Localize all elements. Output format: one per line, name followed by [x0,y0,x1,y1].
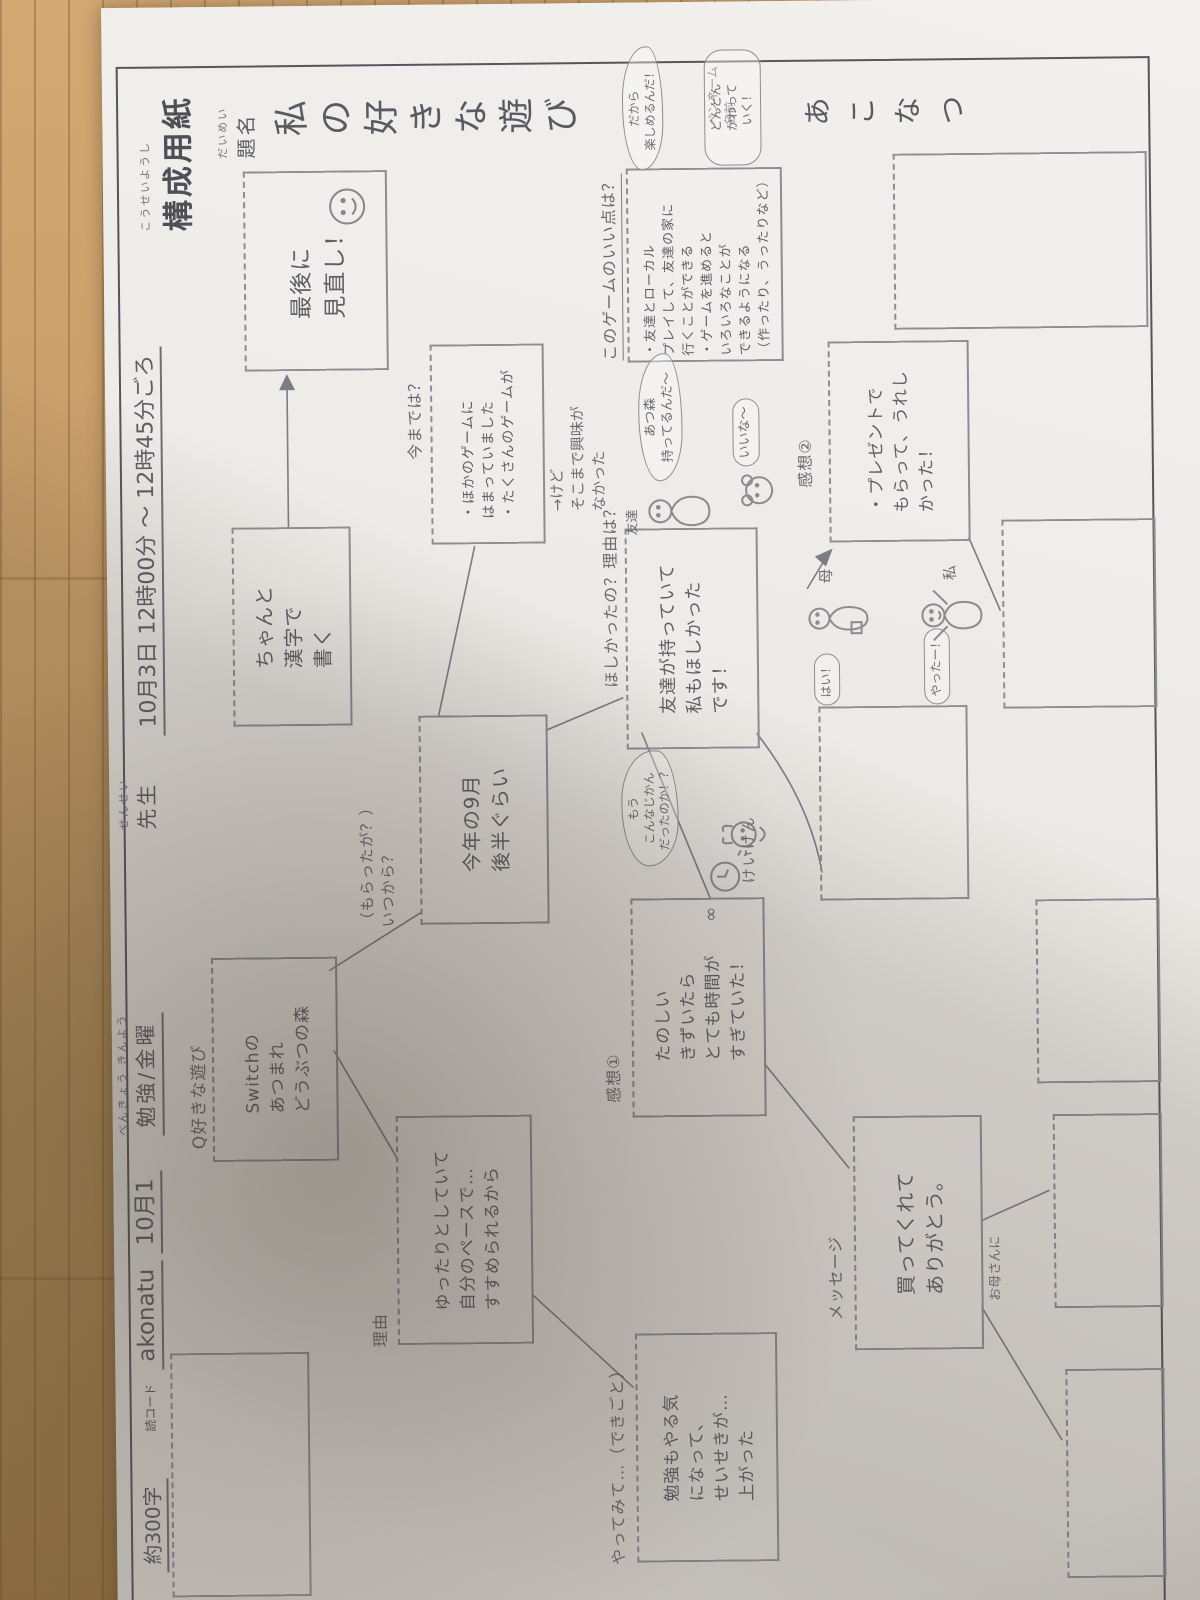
friend-label: 友達 [621,509,640,535]
box-final-check-text: 最後に 見直し！ [281,223,350,320]
message-label: メッセージ [822,1236,847,1321]
message-note: お母さんに [984,1236,1004,1301]
empty-box-2 [1001,518,1157,709]
box-wanted-text: 友達が持っていて 私もほしかった です！ [652,563,732,714]
box-message: 買ってくれて ありがとう。 [853,1115,984,1350]
friend-doodle-cluster: 友達 あつ森 持ってるんだ〜 いいな〜 [620,351,792,538]
box-reason: ゆったりとしていて 自分のペースで… すすめられるから [396,1115,534,1345]
friend-speech-bubble: あつ森 持ってるんだ〜 [638,353,683,481]
box-kanji: ちゃんと 漢字で 書く [231,527,352,727]
empty-box-5 [1053,1113,1164,1308]
box-until-now: ・ほかのゲームに はまっていました ・たくさんのゲームが [430,343,546,544]
infinity-squiggle: ∞ [700,907,721,922]
keiken-label: けいけん [738,815,760,883]
empty-box-3 [818,705,969,901]
line-kanji-to-final [287,386,288,528]
good-points-label: このゲームのいい点は？ [595,174,624,361]
box-good-points: ・友達とローカル プレイして、友達の家に 行くことができる ・ゲームを進めると … [626,167,784,363]
box-when-text: 今年の9月 後半ぐらい [455,767,514,873]
photo-scene: 約300字 読コード akonatu 10月1 べんきょう きんよう 勉強/金曜… [0,0,1200,1600]
q-label: Q好きな遊び [184,1045,210,1150]
line-message-to-boxN [982,1306,1062,1441]
box-kanji-text: ちゃんと 漢字で 書く [248,584,336,669]
box-final-check: 最後に 見直し！ [243,170,389,371]
until-note: →けど そこまで興味が なかった [545,406,609,512]
when-label: （もらったが？） いつから？ [355,799,398,927]
box-message-text: 買ってくれて ありがとう。 [889,1170,948,1295]
empty-box-6 [1065,1368,1166,1578]
box-good-points-text: ・友達とローカル プレイして、友達の家に 行くことができる ・ゲームを進めると … [637,173,772,356]
line-q-to-reason [334,1050,398,1161]
empty-box-4 [1035,898,1161,1083]
until-label: 今までは？ [401,375,426,460]
want-label: ほしかったの？理由は？ [596,501,622,688]
mom-label: 母 [815,568,836,583]
box-favorite-game: Switchの あつまれ どうぶつの森 [211,957,339,1162]
empty-box-7 [893,151,1149,330]
box-try: 勉強もやる気 になって、 せいせきが… 上がった [635,1332,779,1562]
mom-speech-bubble: はい！ [814,653,840,705]
cloud-note-bubble: だから 楽しめるんだ！ [621,46,663,170]
arrowhead-final [279,374,295,390]
me-label: 私 [939,565,960,580]
box-wanted: 友達が持っていて 私もほしかった です！ [625,527,760,749]
box-reason-text: ゆったりとしていて 自分のペースで… すすめられるから [427,1149,504,1311]
line-until-to-when [437,546,477,716]
kansou2-label: 感想② [792,438,817,488]
me-figure-doodle [909,586,986,645]
try-label: やってみて…（できごと） [603,1361,629,1564]
planning-sheet-paper: 約300字 読コード akonatu 10月1 べんきょう きんよう 勉強/金曜… [101,0,1200,1600]
envy-bubble: いいな〜 [732,398,760,466]
clock-doodle-cluster: もう こんなじかん だったのか！？ [621,753,807,895]
clock-speech-bubble: もう こんなじかん だったのか！？ [621,750,679,867]
line-when-to-want [545,698,623,731]
line-message-to-boxM [980,1190,1049,1221]
box-favorite-game-text: Switchの あつまれ どうぶつの森 [237,1005,313,1114]
box-when: 今年の9月 後半ぐらい [418,714,549,924]
reason-label: 理由 [367,1313,391,1347]
empty-box-1 [170,1352,312,1597]
box-kansou1: たのしい きずいたら とても時間が すぎていた！ [630,897,766,1117]
present-doodle-cluster: はい！ 母 やったー！ 私 [807,538,1024,705]
friend-figure-doodle [647,485,714,538]
bear-face-doodle [737,470,777,510]
box-until-now-text: ・ほかのゲームに はまっていました ・たくさんのゲームが [457,369,519,519]
smiley-doodle [323,184,371,229]
box-kansou2: ・プレゼントで もらって、うれし かった！ [828,340,971,542]
box-try-text: 勉強もやる気 になって、 せいせきが… 上がった [657,1393,758,1502]
box-kansou2-text: ・プレゼントで もらって、うれし かった！ [861,370,937,513]
box-kansou1-text: たのしい きずいたら とても時間が すぎていた！ [648,953,749,1062]
mom-figure-doodle [807,593,878,644]
change-note-bubble: どんどん かわって いく！ [704,49,762,166]
kansou1-label: 感想① [600,1053,625,1103]
line-kansou1-to-message [764,1062,849,1169]
